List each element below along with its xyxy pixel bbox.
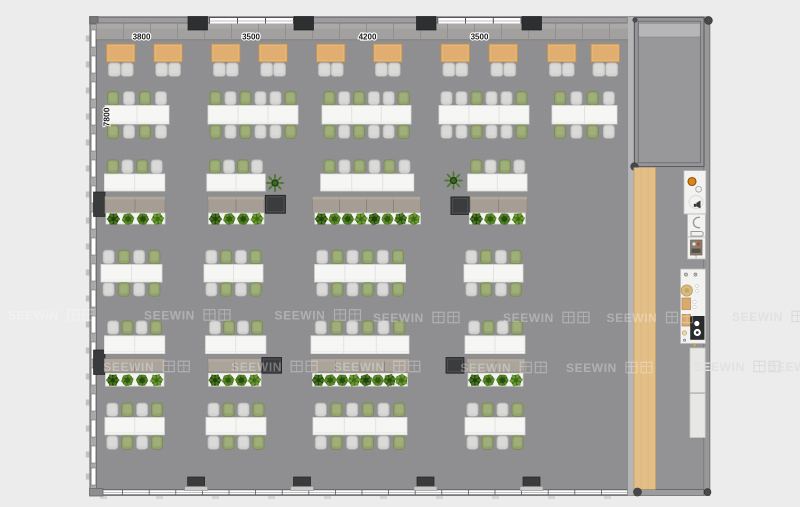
svg-text:SEEWIN: SEEWIN — [144, 309, 195, 323]
svg-text:SEEWIN: SEEWIN — [769, 360, 800, 374]
svg-text:⚙: ⚙ — [684, 272, 689, 279]
svg-text:⚙: ⚙ — [693, 272, 698, 279]
svg-text:3800: 3800 — [133, 32, 151, 41]
svg-text:SEEWIN: SEEWIN — [607, 311, 658, 325]
svg-text:3500: 3500 — [471, 32, 489, 41]
svg-text:4200: 4200 — [359, 32, 377, 41]
svg-text:SEEWIN: SEEWIN — [103, 360, 154, 374]
svg-text:SEEWIN: SEEWIN — [231, 360, 282, 374]
svg-text:SEEWIN: SEEWIN — [694, 360, 745, 374]
svg-text:1: 1 — [695, 255, 697, 259]
svg-text:SEEWIN: SEEWIN — [566, 361, 617, 375]
svg-text:SEEWIN: SEEWIN — [275, 309, 326, 323]
svg-text:SEEWIN: SEEWIN — [460, 361, 511, 375]
svg-text:SEEWIN: SEEWIN — [732, 310, 783, 324]
svg-text:3500: 3500 — [242, 32, 260, 41]
svg-text:7800: 7800 — [101, 107, 111, 126]
svg-text:SEEWIN: SEEWIN — [334, 360, 385, 374]
svg-text:SEEWIN: SEEWIN — [503, 311, 554, 325]
svg-text:SEEWIN: SEEWIN — [8, 309, 59, 323]
svg-text:SEEWIN: SEEWIN — [373, 311, 424, 325]
